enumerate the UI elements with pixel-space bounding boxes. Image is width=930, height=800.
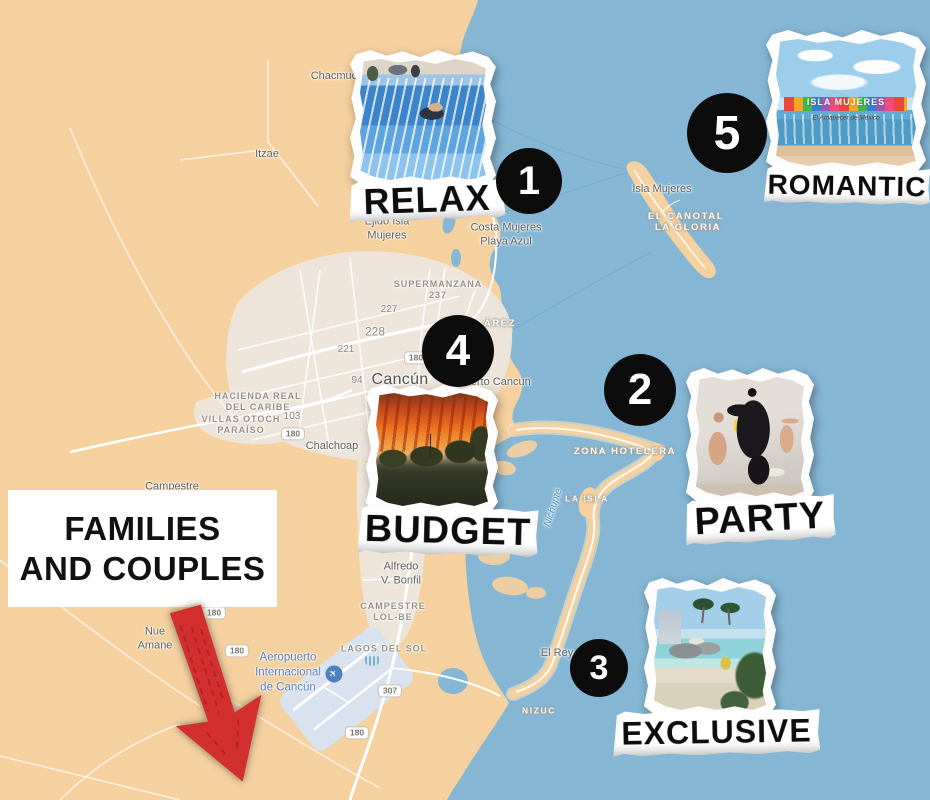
exclusive-photo	[644, 578, 776, 722]
palm-trunk	[701, 607, 705, 623]
marker-3: 3	[570, 639, 628, 697]
red-arrow	[115, 593, 285, 800]
road-shield-180: 180	[345, 726, 369, 739]
budget-label-band: BUDGET	[357, 505, 538, 558]
isla-mujeres-sign-image: ISLA MUJERES El Amanecer de México	[776, 39, 916, 166]
road-shield-307: 307	[378, 684, 402, 697]
flowrider-wave-pool-image	[360, 59, 486, 180]
airplane-icon: ✈	[326, 666, 343, 683]
marker-1-number: 1	[518, 159, 540, 204]
isla-mujeres-sign-caption: El Amanecer de México	[790, 114, 902, 121]
light-pole-silhouette	[430, 434, 432, 458]
road-shield-180: 180	[281, 427, 305, 440]
marker-2: 2	[604, 354, 676, 426]
exclusive-label-band: EXCLUSIVE	[613, 708, 821, 757]
callout-line-1: FAMILIES	[64, 512, 220, 545]
families-couples-callout: FAMILIES AND COUPLES	[8, 490, 277, 607]
marker-5: 5	[687, 93, 767, 173]
isla-mujeres-sign-text: ISLA MUJERES	[776, 97, 916, 107]
party-photo	[686, 368, 814, 508]
exclusive-label: EXCLUSIVE	[621, 712, 812, 752]
budget-photo	[366, 384, 498, 518]
relax-photo	[350, 50, 496, 192]
marker-3-number: 3	[590, 649, 609, 688]
sunset-image	[376, 393, 488, 506]
cancun-zones-infographic: Chacmuch Itzae Ejido Isla Mujeres Costa …	[0, 0, 930, 800]
marker-4: 4	[422, 315, 494, 387]
marker-5-number: 5	[714, 106, 741, 161]
palm-trunk	[727, 609, 730, 625]
romantic-label-band: ROMANTIC	[764, 166, 930, 206]
party-label: PARTY	[693, 495, 826, 545]
budget-label: BUDGET	[364, 507, 532, 554]
marker-2-number: 2	[628, 365, 652, 415]
romantic-photo: ISLA MUJERES El Amanecer de México	[766, 30, 926, 178]
wetland-icon	[365, 657, 379, 666]
callout-line-2: AND COUPLES	[20, 552, 266, 585]
gorilla-party-image	[696, 377, 804, 496]
romantic-label: ROMANTIC	[767, 168, 926, 203]
relax-label: RELAX	[363, 177, 491, 223]
marker-1: 1	[496, 148, 562, 214]
marker-4-number: 4	[446, 326, 470, 376]
resort-pool-image	[654, 587, 766, 710]
